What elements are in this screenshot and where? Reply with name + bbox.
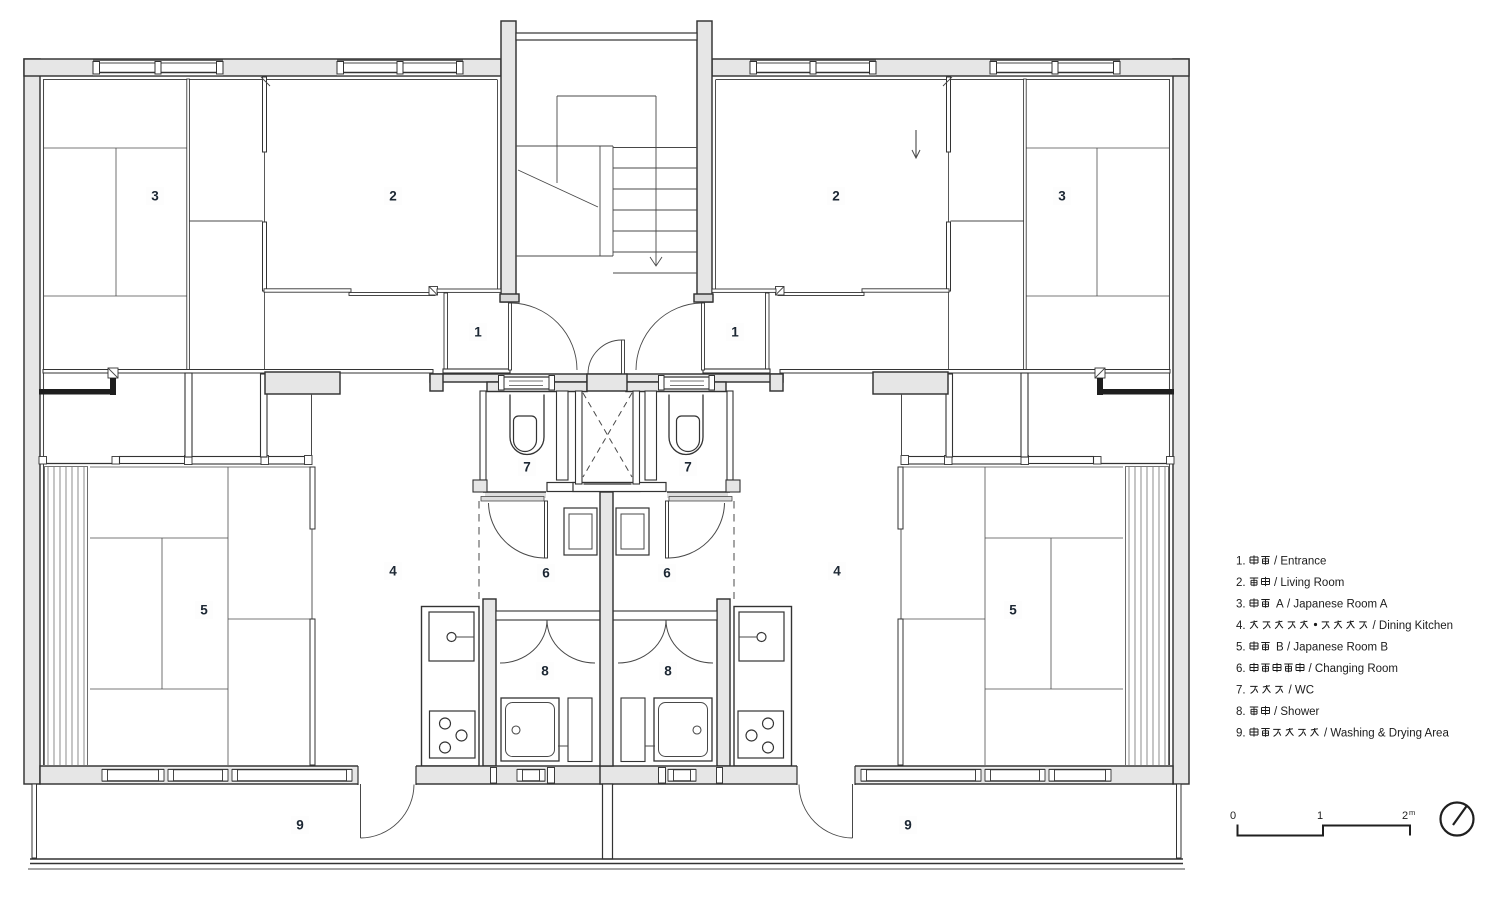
svg-text:1: 1 — [1317, 810, 1323, 822]
svg-text:B: B — [1276, 642, 1284, 654]
svg-text:1.: 1. — [1236, 556, 1246, 568]
svg-text:/ Washing & Drying Area: / Washing & Drying Area — [1324, 728, 1449, 740]
svg-text:5: 5 — [1009, 603, 1017, 618]
svg-text:/ Shower: / Shower — [1274, 706, 1320, 718]
svg-text:7: 7 — [684, 460, 692, 475]
svg-text:/ Living Room: / Living Room — [1274, 577, 1344, 589]
svg-text:9: 9 — [904, 818, 912, 833]
svg-text:4: 4 — [833, 564, 841, 579]
svg-text:A: A — [1276, 599, 1284, 611]
svg-text:3: 3 — [151, 189, 159, 204]
svg-text:4: 4 — [389, 564, 397, 579]
svg-text:9.: 9. — [1236, 728, 1246, 740]
svg-text:1: 1 — [731, 325, 739, 340]
svg-text:m: m — [1409, 808, 1415, 817]
svg-text:5: 5 — [200, 603, 208, 618]
svg-text:/ Changing Room: / Changing Room — [1309, 663, 1399, 675]
svg-text:2.: 2. — [1236, 577, 1246, 589]
svg-text:/ WC: / WC — [1289, 685, 1315, 697]
svg-text:8: 8 — [664, 664, 672, 679]
svg-text:9: 9 — [296, 818, 304, 833]
svg-text:7: 7 — [523, 460, 531, 475]
svg-text:6.: 6. — [1236, 663, 1246, 675]
svg-text:/ Entrance: / Entrance — [1274, 556, 1326, 568]
svg-text:1: 1 — [474, 325, 482, 340]
svg-text:7.: 7. — [1236, 685, 1246, 697]
svg-text:0: 0 — [1230, 810, 1236, 822]
svg-text:8: 8 — [541, 664, 549, 679]
svg-text:/ Japanese Room A: / Japanese Room A — [1287, 599, 1388, 611]
svg-text:/ Japanese Room B: / Japanese Room B — [1287, 642, 1388, 654]
svg-text:3.: 3. — [1236, 599, 1246, 611]
svg-text:2: 2 — [389, 189, 397, 204]
svg-text:5.: 5. — [1236, 642, 1246, 654]
svg-text:/ Dining Kitchen: / Dining Kitchen — [1373, 620, 1454, 632]
svg-text:6: 6 — [663, 566, 671, 581]
svg-text:4.: 4. — [1236, 620, 1246, 632]
svg-text:8.: 8. — [1236, 706, 1246, 718]
svg-text:6: 6 — [542, 566, 550, 581]
svg-text:2: 2 — [832, 189, 840, 204]
svg-text:2: 2 — [1402, 810, 1408, 822]
svg-text:3: 3 — [1058, 189, 1066, 204]
